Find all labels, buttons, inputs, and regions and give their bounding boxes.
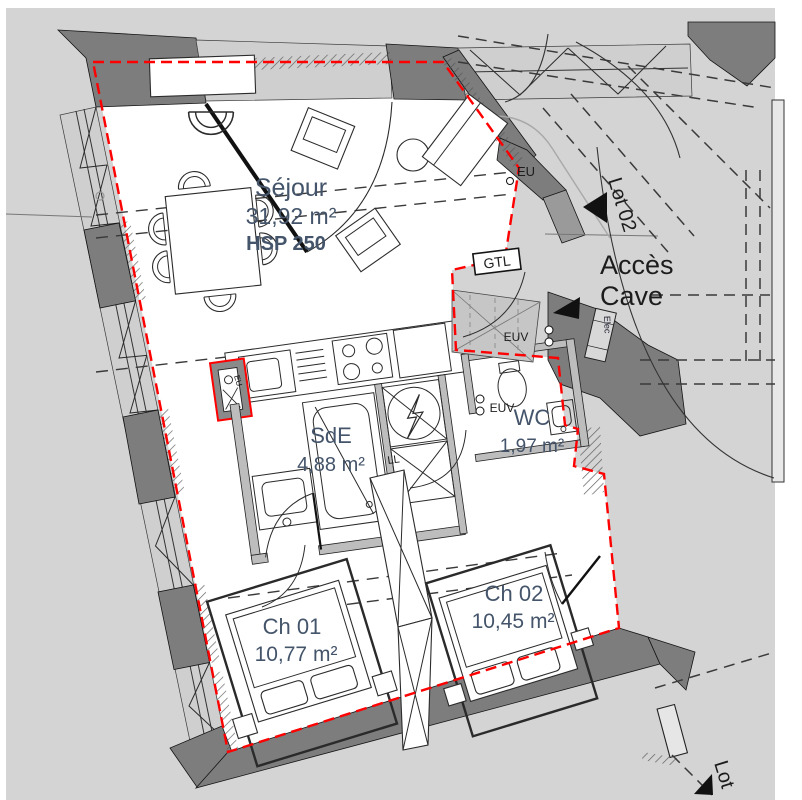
sde-area: 4,88 m² (297, 454, 365, 476)
svg-text:Accès: Accès (600, 250, 674, 280)
floor-plan-drawing: EU (0, 0, 802, 800)
ch02-name: Ch 02 (485, 581, 544, 606)
acces-cave-label: Accès Cave (600, 250, 674, 311)
elec-label: Elec (602, 316, 613, 334)
ch02-area: 10,45 m² (472, 610, 555, 633)
euv-entry-marker (545, 326, 553, 334)
euv-entry-marker (545, 338, 553, 346)
sejour-area: 31,92 m² (246, 203, 337, 229)
wc-area: 1,97 m² (500, 436, 564, 457)
eu-label: EU (517, 164, 535, 179)
hall-door-leaf (772, 100, 784, 482)
floor-plan-canvas: EU (0, 0, 802, 800)
svg-text:Cave: Cave (600, 281, 663, 311)
sejour-hsp-note: HSP 250 (246, 233, 326, 255)
euv-wc-label: EUV (490, 401, 515, 415)
ll-label: LL (387, 453, 401, 467)
sejour-name: Séjour (255, 174, 327, 202)
wc-name: WC (514, 405, 551, 430)
euv-wc-marker (476, 407, 484, 415)
gtl-label: GTL (483, 252, 512, 271)
eu-marker (507, 178, 514, 185)
gtl-box: GTL (473, 248, 521, 274)
sde-name: SdE (310, 423, 352, 448)
euv-wc-marker (476, 395, 484, 403)
ch01-name: Ch 01 (263, 614, 322, 639)
ch01-area: 10,77 m² (255, 643, 338, 666)
euv-entry-label: EUV (504, 330, 529, 344)
